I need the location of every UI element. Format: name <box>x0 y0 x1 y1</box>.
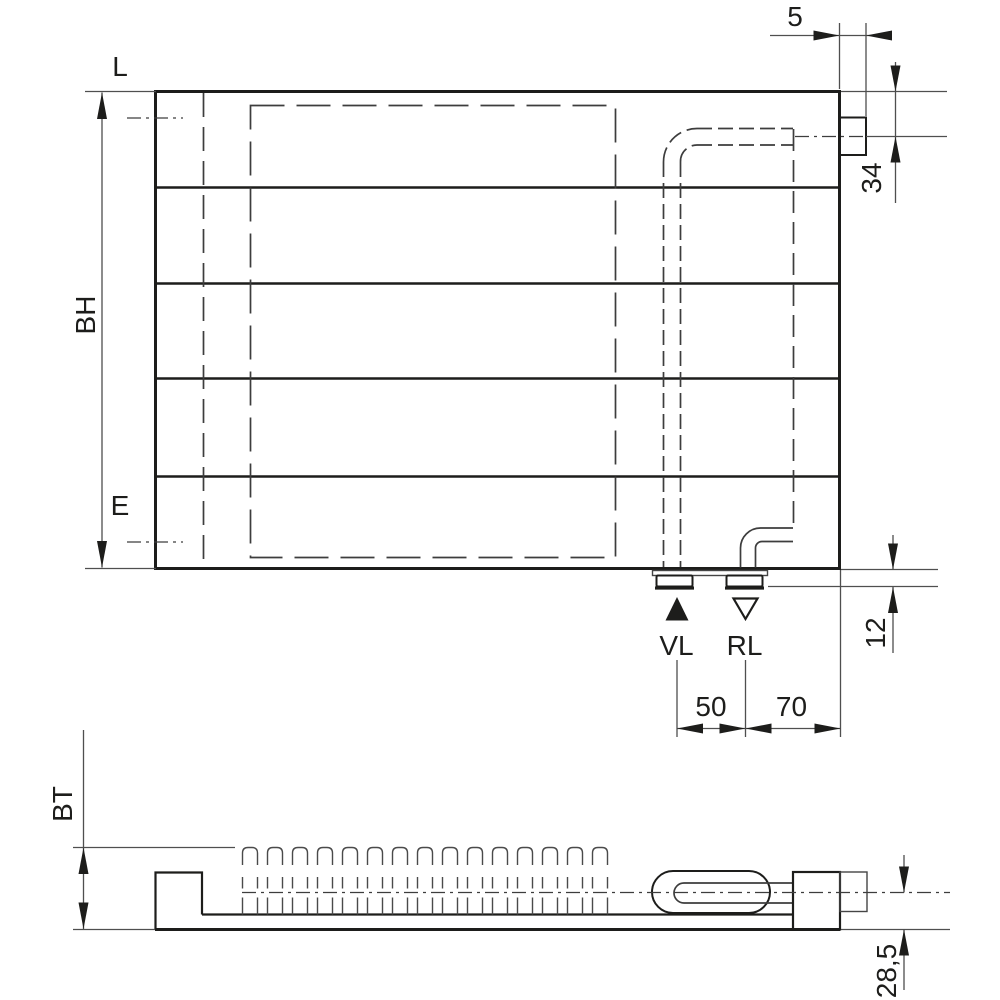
arrow-up-icon <box>79 848 89 875</box>
fin-break-mask <box>241 865 611 877</box>
arrow-left-icon <box>866 31 892 41</box>
supply-direction-icon <box>666 597 689 621</box>
arrow-down-icon <box>899 867 909 893</box>
convector-hidden-rect <box>251 106 616 558</box>
supply-pipe-hidden <box>664 129 794 568</box>
bottom-connection-stubs <box>653 571 768 589</box>
arrow-up-icon <box>891 137 901 163</box>
radiator-technical-drawing: L BH E 5 34 12 VL RL <box>0 0 1000 1000</box>
return-stub <box>727 576 763 587</box>
elbow-inner <box>756 542 763 549</box>
arrow-down-icon <box>888 544 898 570</box>
elbow-inner <box>680 145 697 162</box>
dim-12-value: 12 <box>860 617 891 648</box>
arrow-down-icon <box>891 66 901 92</box>
dim-70-value: 70 <box>776 691 807 722</box>
return-label: RL <box>727 630 763 661</box>
arrow-up-icon <box>97 93 107 120</box>
dim-50-value: 50 <box>695 691 726 722</box>
elbow-outer <box>741 528 761 548</box>
front-view-dimensions: L BH E 5 34 12 VL RL <box>70 1 947 737</box>
end-bracket <box>156 873 203 930</box>
arrow-up-icon <box>888 587 898 613</box>
supply-stub <box>657 576 693 587</box>
build-height-label: BH <box>70 296 101 335</box>
length-label: L <box>112 51 128 82</box>
return-pipe <box>741 528 794 568</box>
connection-block <box>793 872 840 930</box>
build-depth-label: BT <box>47 786 78 822</box>
arrow-right-icon <box>814 31 840 41</box>
arrow-down-icon <box>79 903 89 930</box>
supply-label: VL <box>659 630 693 661</box>
dim-5-value: 5 <box>787 1 803 32</box>
arrow-right-icon <box>720 724 746 734</box>
connection-height-label: E <box>111 490 130 521</box>
technical-drawing-page: L BH E 5 34 12 VL RL <box>0 0 1000 1000</box>
profile-view: BT 28,5 <box>47 730 950 998</box>
dim-28-5-value: 28,5 <box>871 944 902 999</box>
radiator-outline <box>156 92 840 569</box>
panel-seam-lines <box>156 188 839 477</box>
arrow-left-icon <box>746 724 772 734</box>
dim-34-value: 34 <box>856 162 887 193</box>
return-direction-icon <box>734 599 758 620</box>
arrow-right-icon <box>815 724 841 734</box>
connection-nipple <box>840 872 867 912</box>
arrow-down-icon <box>97 541 107 568</box>
arrow-left-icon <box>677 724 703 734</box>
front-view <box>127 92 866 589</box>
convector-fins <box>241 848 611 915</box>
